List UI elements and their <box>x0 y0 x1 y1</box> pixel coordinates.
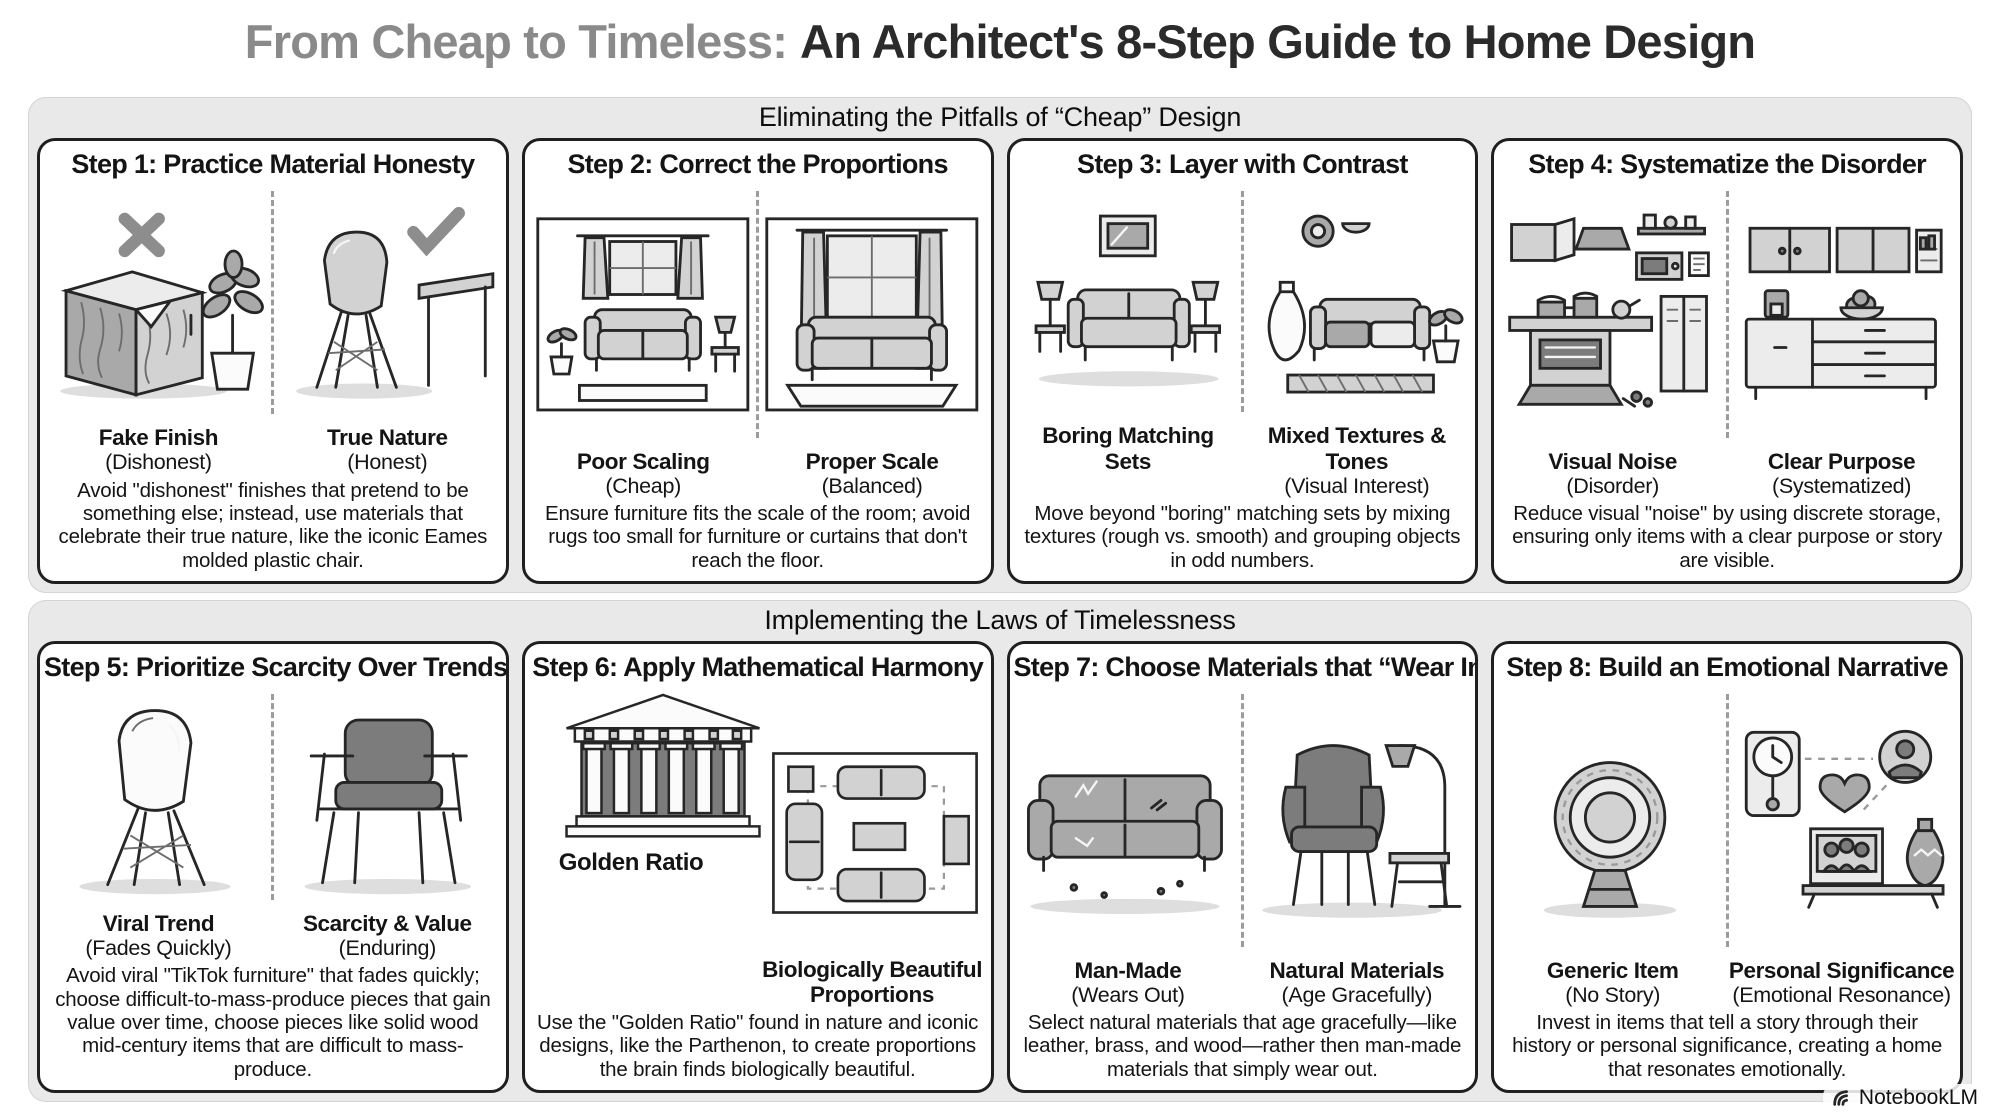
step-5-bad-half <box>46 686 270 908</box>
dashed-divider <box>1726 694 1729 947</box>
textured-rug <box>1288 375 1434 392</box>
step-5-good-half <box>275 686 499 908</box>
step-2-bad-half <box>531 183 755 446</box>
step-4-title: Step 4: Systematize the Disorder <box>1494 141 1960 180</box>
step-3-bad-half <box>1016 183 1240 420</box>
floor-plan <box>773 754 976 913</box>
textured-sofa <box>1311 299 1430 360</box>
step-3-card: Step 3: Layer with Contrast <box>1007 138 1479 584</box>
step-2-illustration-row <box>525 180 991 449</box>
step-8-labels: Generic Item (No Story) Personal Signifi… <box>1494 958 1960 1007</box>
fruit-bowl <box>1841 291 1883 319</box>
small-rug <box>580 385 707 400</box>
step-2-labels: Poor Scaling (Cheap) Proper Scale (Balan… <box>525 449 991 498</box>
step-7-bad-half <box>1016 686 1240 955</box>
sideboard <box>1746 319 1935 398</box>
section-timelessness: Implementing the Laws of Timelessness St… <box>28 600 1972 1102</box>
label-right: True Nature (Honest) <box>273 425 502 474</box>
wood-table <box>419 273 493 385</box>
step-7-description: Select natural materials that age gracef… <box>1010 1007 1476 1090</box>
step-4-good-half <box>1730 183 1954 446</box>
step-7-illustration-row <box>1010 683 1476 958</box>
natural-materials-illustration <box>1248 690 1466 951</box>
step-4-bad-half <box>1500 183 1724 446</box>
label-right: Natural Materials (Age Gracefully) <box>1242 958 1471 1007</box>
dashed-divider <box>756 191 759 438</box>
label-left: Fake Finish (Dishonest) <box>44 425 273 474</box>
tall-vase <box>1269 282 1305 360</box>
shelf <box>1803 886 1943 908</box>
label-right: Mixed Textures & Tones (Visual Interest) <box>1242 423 1471 497</box>
step-4-labels: Visual Noise (Disorder) Clear Purpose (S… <box>1494 449 1960 498</box>
parthenon-illustration <box>537 685 789 843</box>
step-8-bad-half <box>1500 686 1724 955</box>
label-left: Poor Scaling (Cheap) <box>529 449 758 498</box>
step-1-card: Step 1: Practice Material Honesty <box>37 138 509 584</box>
step-1-labels: Fake Finish (Dishonest) True Nature (Hon… <box>40 425 506 474</box>
framed-picture <box>1100 216 1155 256</box>
section-2-cards: Step 5: Prioritize Scarcity Over Trends <box>37 641 1963 1093</box>
label-right: Proper Scale (Balanced) <box>758 449 987 498</box>
potted-plant <box>200 251 267 389</box>
step-6-labels: Biologically Beautiful Proportions <box>525 957 991 1007</box>
wood-frame-armchair <box>311 720 466 883</box>
step-7-labels: Man-Made (Wears Out) Natural Materials (… <box>1010 958 1476 1007</box>
eames-chair <box>317 232 396 387</box>
heirloom-vase <box>1907 819 1943 885</box>
step-4-card: Step 4: Systematize the Disorder <box>1491 138 1963 584</box>
label-left: Visual Noise (Disorder) <box>1498 449 1727 498</box>
dashed-divider <box>1241 694 1244 947</box>
step-3-title: Step 3: Layer with Contrast <box>1010 141 1476 180</box>
step-5-description: Avoid viral "TikTok furniture" that fade… <box>40 960 506 1090</box>
dashed-divider <box>271 694 274 900</box>
x-mark-icon <box>125 218 159 250</box>
step-4-description: Reduce visual "noise" by using discrete … <box>1494 498 1960 581</box>
label-left: Man-Made (Wears Out) <box>1014 958 1243 1007</box>
plant <box>1427 306 1464 361</box>
step-8-illustration-row <box>1494 683 1960 958</box>
step-7-title: Step 7: Choose Materials that “Wear In” <box>1010 644 1476 683</box>
section-1-header: Eliminating the Pitfalls of “Cheap” Desi… <box>28 97 1972 133</box>
step-3-illustration-row <box>1010 180 1476 423</box>
step-6-card: Step 6: Apply Mathematical Harmony <box>522 641 994 1093</box>
wood-side-table <box>1390 853 1449 906</box>
golden-ratio-label: Golden Ratio <box>559 849 704 877</box>
step-5-title: Step 5: Prioritize Scarcity Over Trends <box>40 644 506 683</box>
clear-purpose-illustration <box>1733 187 1951 442</box>
dashed-divider <box>1241 191 1244 412</box>
check-mark-icon <box>413 213 458 247</box>
person-avatar <box>1880 731 1931 782</box>
step-2-card: Step 2: Correct the Proportions <box>522 138 994 584</box>
pendulum-clock <box>1746 732 1799 815</box>
visual-noise-illustration <box>1504 187 1722 442</box>
step-5-labels: Viral Trend (Fades Quickly) Scarcity & V… <box>40 911 506 960</box>
section-2-header: Implementing the Laws of Timelessness <box>28 600 1972 636</box>
step-5-card: Step 5: Prioritize Scarcity Over Trends <box>37 641 509 1093</box>
step-4-illustration-row <box>1494 180 1960 449</box>
mixed-textures-illustration <box>1248 187 1466 417</box>
section-pitfalls: Eliminating the Pitfalls of “Cheap” Desi… <box>28 97 1972 593</box>
family-photo-frame <box>1811 829 1883 884</box>
page-title-main: An Architect's 8-Step Guide to Home Desi… <box>800 15 1755 68</box>
matching-set-illustration <box>1019 187 1237 417</box>
label-left: Generic Item (No Story) <box>1498 958 1727 1007</box>
parthenon <box>566 695 759 836</box>
notebooklm-label: NotebookLM <box>1859 1086 1978 1110</box>
matching-sofa <box>1068 289 1189 359</box>
personal-significance-illustration <box>1733 690 1951 951</box>
peeling-cabinet <box>66 271 202 394</box>
generic-item-illustration <box>1504 690 1722 951</box>
step-7-good-half <box>1245 686 1469 955</box>
step-5-illustration-row <box>40 683 506 911</box>
step-8-title: Step 8: Build an Emotional Narrative <box>1494 644 1960 683</box>
step-6-title: Step 6: Apply Mathematical Harmony <box>525 644 991 683</box>
label-right: Scarcity & Value (Enduring) <box>273 911 502 960</box>
glossy-plastic-chair <box>108 711 205 885</box>
coffee-maker <box>1765 291 1788 317</box>
notebooklm-badge: NotebookLM <box>1823 1084 1986 1112</box>
viral-trend-chair-illustration <box>49 689 267 904</box>
step-7-card: Step 7: Choose Materials that “Wear In” <box>1007 641 1479 1093</box>
label-right: Personal Significance (Emotional Resonan… <box>1727 958 1956 1007</box>
dashed-divider <box>271 191 274 414</box>
wall-plates <box>1303 216 1369 246</box>
worn-sofa-illustration <box>1019 690 1237 951</box>
notebooklm-logo-icon <box>1831 1087 1853 1109</box>
label-right: Clear Purpose (Systematized) <box>1727 449 1956 498</box>
dashed-divider <box>1726 191 1729 438</box>
closed-cabinets <box>1750 228 1941 272</box>
step-2-title: Step 2: Correct the Proportions <box>525 141 991 180</box>
leather-wingback-chair <box>1283 746 1384 905</box>
step-1-bad-half <box>46 183 270 422</box>
page-title: From Cheap to Timeless:An Architect's 8-… <box>0 0 2000 69</box>
step-3-description: Move beyond "boring" matching sets by mi… <box>1010 498 1476 581</box>
step-8-good-half <box>1730 686 1954 955</box>
decorative-plate <box>1555 763 1665 907</box>
section-1-cards: Step 1: Practice Material Honesty <box>37 138 1963 584</box>
large-rug <box>788 385 956 406</box>
step-2-description: Ensure furniture fits the scale of the r… <box>525 498 991 581</box>
heart-icon <box>1820 775 1869 812</box>
step-3-labels: Boring Matching Sets Mixed Textures & To… <box>1010 423 1476 497</box>
poor-scaling-illustration <box>534 187 752 442</box>
true-nature-illustration <box>279 187 497 419</box>
step-1-illustration-row <box>40 180 506 425</box>
floor-plan-illustration <box>769 749 981 917</box>
step-1-description: Avoid "dishonest" finishes that pretend … <box>40 475 506 581</box>
step-3-good-half <box>1245 183 1469 420</box>
label-left: Viral Trend (Fades Quickly) <box>44 911 273 960</box>
step-1-good-half <box>275 183 499 422</box>
step-8-card: Step 8: Build an Emotional Narrative <box>1491 641 1963 1093</box>
label-spacer <box>529 957 758 1007</box>
short-curtain-window <box>578 236 709 298</box>
step-1-title: Step 1: Practice Material Honesty <box>40 141 506 180</box>
step-2-good-half <box>760 183 984 446</box>
step-6-illustration-area: Golden Ratio <box>525 683 991 957</box>
label-left: Boring Matching Sets <box>1014 423 1243 497</box>
midcentury-armchair-illustration <box>279 689 497 904</box>
label-right: Biologically Beautiful Proportions <box>758 957 987 1007</box>
page-title-muted: From Cheap to Timeless: <box>245 15 787 68</box>
fake-finish-illustration <box>49 187 267 419</box>
step-6-description: Use the "Golden Ratio" found in nature a… <box>525 1007 991 1090</box>
worn-out-sofa <box>1028 776 1221 898</box>
step-8-description: Invest in items that tell a story throug… <box>1494 1007 1960 1090</box>
proper-scale-illustration <box>763 187 981 442</box>
matching-lamp-right <box>1191 282 1219 351</box>
matching-lamp-left <box>1036 282 1064 351</box>
cluttered-kitchen <box>1509 215 1708 406</box>
